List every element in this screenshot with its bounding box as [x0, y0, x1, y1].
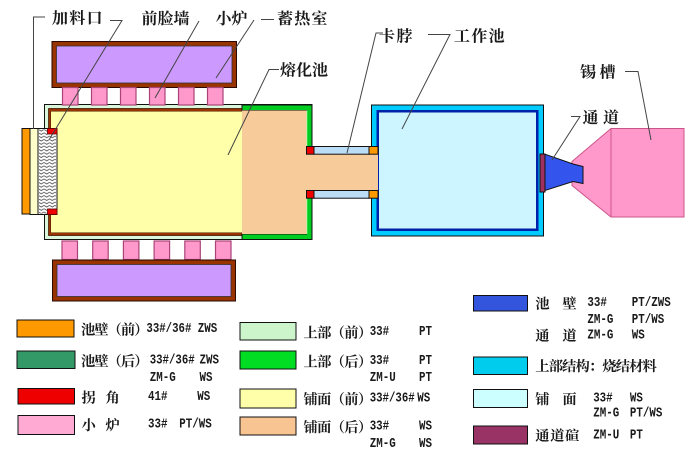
svg-text:WS: WS — [417, 390, 430, 406]
svg-text:33#/36#: 33#/36# — [150, 352, 195, 368]
svg-text:PT: PT — [419, 370, 432, 386]
svg-text:WS: WS — [419, 436, 432, 452]
svg-text:PT/WS: PT/WS — [630, 405, 663, 421]
svg-text:33#: 33# — [593, 390, 613, 406]
svg-text:ZM-G: ZM-G — [370, 436, 396, 452]
svg-text:41#: 41# — [148, 389, 168, 405]
svg-text:WS: WS — [200, 370, 213, 386]
svg-text:PT/WS: PT/WS — [179, 416, 212, 432]
svg-text:33#: 33# — [148, 416, 168, 432]
svg-text:ZWS: ZWS — [200, 352, 220, 368]
svg-text:33#: 33# — [370, 324, 390, 340]
svg-text:ZM-G: ZM-G — [587, 312, 613, 328]
svg-text:WS: WS — [630, 390, 643, 406]
svg-text:33#: 33# — [370, 418, 390, 434]
svg-text:ZM-U: ZM-U — [370, 370, 396, 386]
svg-text:PT/ZWS: PT/ZWS — [632, 295, 671, 311]
svg-text:WS: WS — [197, 389, 210, 405]
svg-text:PT: PT — [419, 324, 432, 340]
svg-text:ZM-G: ZM-G — [587, 327, 613, 343]
svg-text:WS: WS — [419, 418, 432, 434]
svg-text:PT: PT — [630, 427, 643, 443]
svg-text:ZM-G: ZM-G — [150, 370, 176, 386]
svg-text:PT: PT — [419, 353, 432, 369]
svg-text:ZWS: ZWS — [198, 321, 218, 337]
svg-text:ZM-G: ZM-G — [593, 405, 619, 421]
svg-text:33#/36#: 33#/36# — [146, 321, 191, 337]
svg-text:ZM-U: ZM-U — [593, 427, 619, 443]
svg-text:33#: 33# — [370, 353, 390, 369]
svg-text:WS: WS — [632, 327, 645, 343]
svg-text:PT/WS: PT/WS — [632, 312, 665, 328]
svg-text:33#: 33# — [587, 295, 607, 311]
svg-text:33#/36#: 33#/36# — [370, 390, 415, 406]
